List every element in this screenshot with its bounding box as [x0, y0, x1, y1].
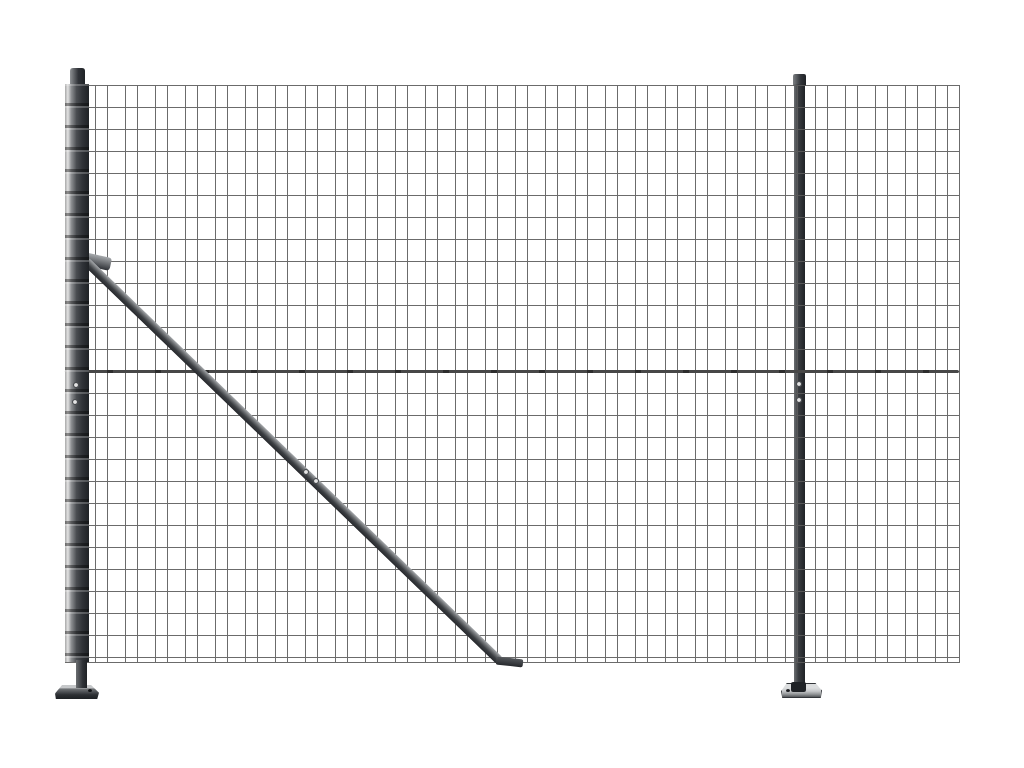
brace-foot [496, 657, 524, 668]
brace-bolt [313, 478, 319, 484]
brace-bolt [303, 469, 309, 475]
right-post-flange-base [791, 682, 806, 692]
right-post-bolt [796, 381, 802, 387]
right-post-bolt [796, 397, 802, 403]
left-post [65, 84, 89, 662]
right-flange-bolt-hole [786, 689, 790, 692]
left-post-bolt [73, 382, 79, 388]
left-post-base [76, 660, 87, 688]
left-post-bolt [72, 399, 78, 405]
left-flange-bolt-hole [88, 689, 92, 692]
fence-product-photo [0, 0, 1024, 768]
